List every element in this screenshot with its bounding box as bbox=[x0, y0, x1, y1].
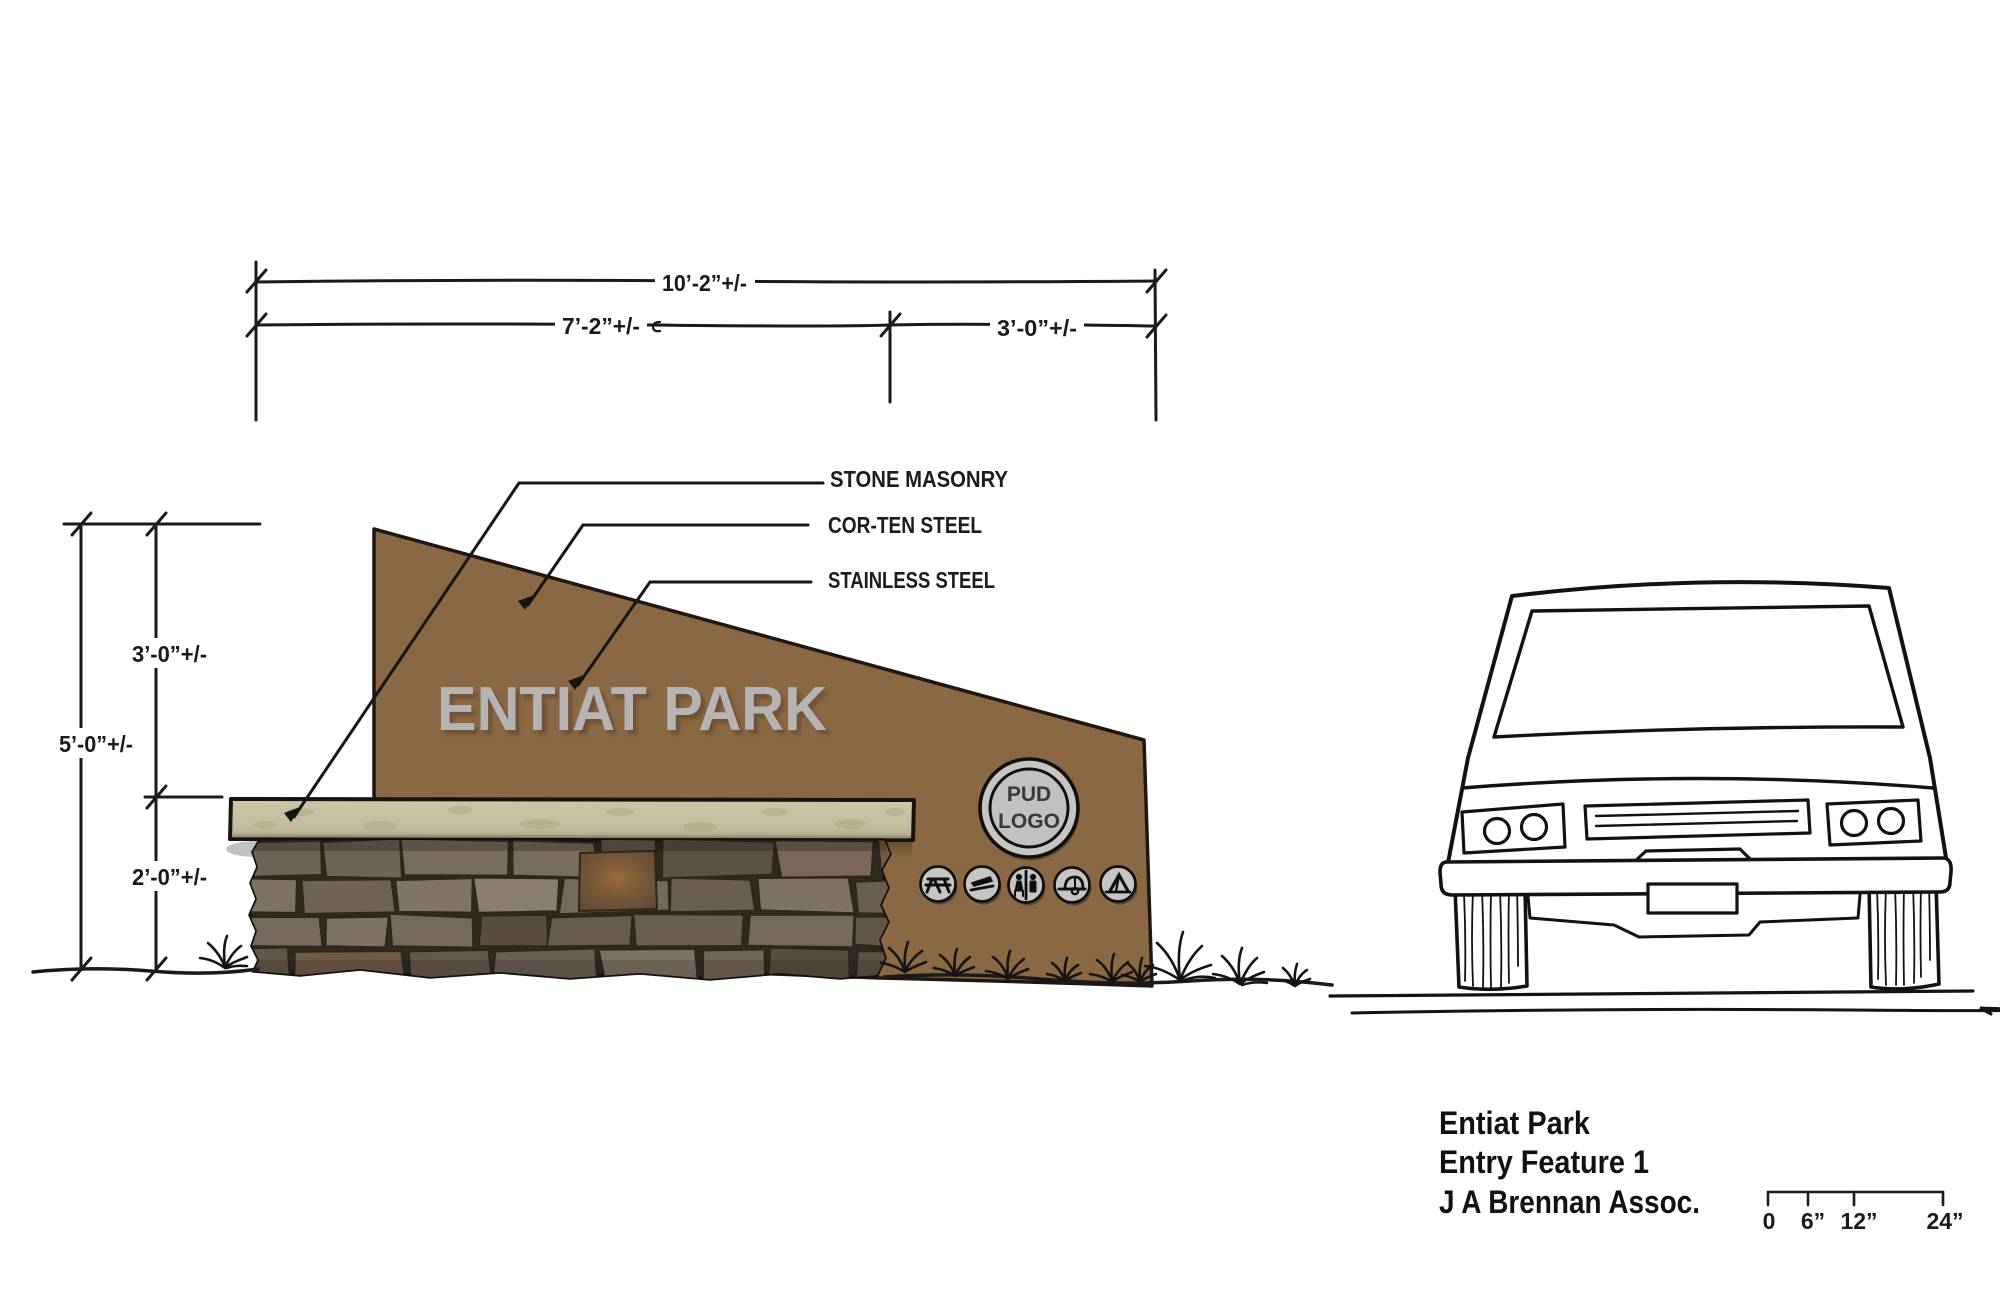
svg-text:PUD: PUD bbox=[1007, 783, 1051, 806]
svg-text:10’-2”+/-: 10’-2”+/- bbox=[662, 270, 747, 296]
svg-text:12”: 12” bbox=[1840, 1208, 1877, 1234]
svg-text:3’-0”+/-: 3’-0”+/- bbox=[997, 315, 1077, 341]
svg-text:6”: 6” bbox=[1801, 1208, 1825, 1234]
svg-text:STONE MASONRY: STONE MASONRY bbox=[830, 466, 1008, 492]
svg-text:0: 0 bbox=[1763, 1208, 1776, 1234]
svg-text:3’-0”+/-: 3’-0”+/- bbox=[132, 641, 207, 667]
svg-text:COR-TEN STEEL: COR-TEN STEEL bbox=[828, 512, 982, 538]
svg-text:Entiat Park: Entiat Park bbox=[1439, 1105, 1590, 1141]
svg-text:ENTIAT PARK: ENTIAT PARK bbox=[437, 675, 827, 744]
svg-text:7’-2”+/-: 7’-2”+/- bbox=[562, 313, 640, 339]
svg-text:24”: 24” bbox=[1926, 1208, 1963, 1234]
svg-text:5’-0”+/-: 5’-0”+/- bbox=[59, 731, 133, 757]
svg-text:STAINLESS STEEL: STAINLESS STEEL bbox=[828, 567, 995, 593]
svg-text:2’-0”+/-: 2’-0”+/- bbox=[132, 864, 207, 890]
svg-text:LOGO: LOGO bbox=[998, 810, 1060, 833]
svg-text:Entry Feature 1: Entry Feature 1 bbox=[1439, 1144, 1649, 1180]
svg-text:J A Brennan Assoc.: J A Brennan Assoc. bbox=[1439, 1184, 1700, 1220]
